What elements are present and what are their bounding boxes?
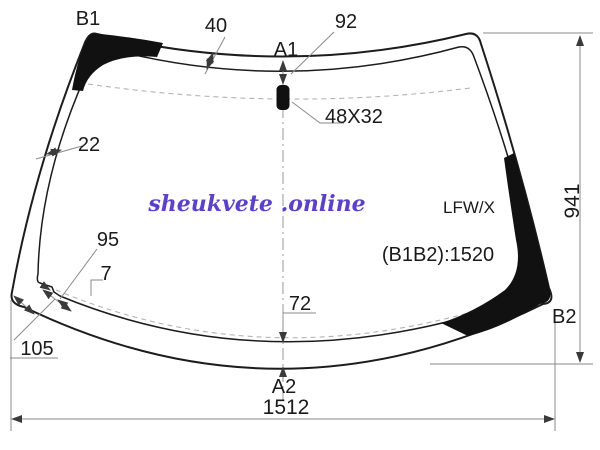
windshield-diagram: B1 A1 A2 B2 40 92 48X32 22 95 7 105 72 1…	[0, 0, 600, 450]
dim-left-band-width: 22	[78, 134, 100, 156]
label-b2: B2	[552, 306, 576, 328]
dim-corner: 105	[20, 338, 53, 360]
dim-top-band-width: 40	[205, 15, 227, 37]
dim-sensor-size: 48X32	[325, 106, 383, 128]
dim-sensor-offset: 92	[335, 11, 357, 33]
label-b1: B1	[76, 8, 100, 30]
label-a2: A2	[272, 376, 296, 398]
dim-overall-width: 1512	[263, 396, 310, 419]
part-code: LFW/X	[443, 198, 495, 217]
dim-notch-step: 7	[100, 263, 111, 285]
sensor-mark	[277, 85, 290, 110]
watermark: sheukvete .online	[147, 191, 365, 217]
b1b2-length-note: (B1B2):1520	[382, 244, 494, 266]
dim-bottom-band-width: 72	[289, 293, 311, 315]
dim-overall-height: 941	[561, 183, 584, 218]
windshield-diagram-page: B1 A1 A2 B2 40 92 48X32 22 95 7 105 72 1…	[0, 0, 600, 450]
label-a1: A1	[274, 39, 298, 61]
dim-notch-length: 95	[97, 229, 119, 251]
